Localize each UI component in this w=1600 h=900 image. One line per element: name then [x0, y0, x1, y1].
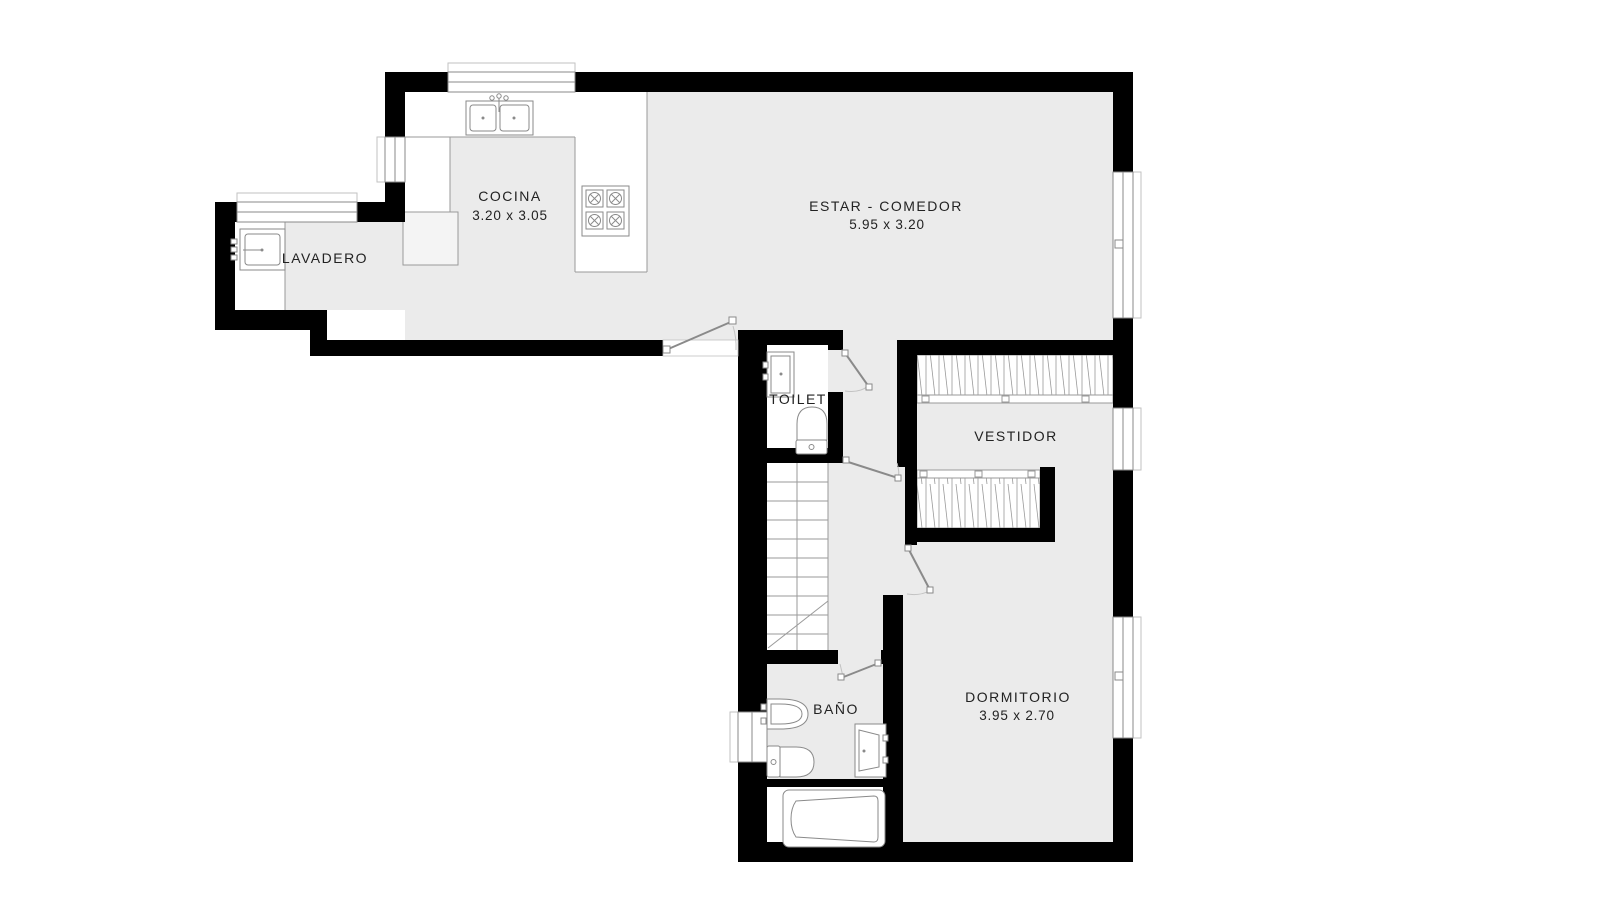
room-dims-estar: 5.95 x 3.20 [849, 217, 925, 232]
room-label-vestidor: VESTIDOR [974, 428, 1058, 444]
room-label-cocina: COCINA [478, 188, 541, 204]
bathtub-icon [783, 790, 885, 847]
room-label-lavadero: LAVADERO [282, 250, 368, 266]
window-icon [1113, 172, 1141, 318]
room-dims-cocina: 3.20 x 3.05 [472, 208, 548, 223]
room-label-estar: ESTAR - COMEDOR [809, 198, 963, 214]
floor-plan: COCINA 3.20 x 3.05 ESTAR - COMEDOR 5.95 … [0, 0, 1600, 900]
window-icon [377, 137, 405, 182]
wardrobe-icon [917, 470, 1040, 528]
room-label-toilet: TOILET [769, 391, 827, 407]
stove-icon [582, 186, 629, 236]
room-label-dormitorio: DORMITORIO [965, 689, 1071, 705]
wardrobe-icon [917, 355, 1113, 403]
window-icon [448, 63, 575, 92]
room-dims-dormitorio: 3.95 x 2.70 [979, 708, 1055, 723]
toilet-icon [796, 407, 827, 454]
window-icon [1113, 617, 1141, 738]
window-icon [237, 193, 357, 222]
kitchen-cabinet-icon [403, 212, 458, 265]
room-label-bano: BAÑO [813, 701, 859, 717]
toilet-icon [767, 746, 814, 777]
window-icon [1113, 408, 1141, 470]
washbasin-icon [855, 724, 888, 777]
bidet-icon [761, 699, 808, 729]
